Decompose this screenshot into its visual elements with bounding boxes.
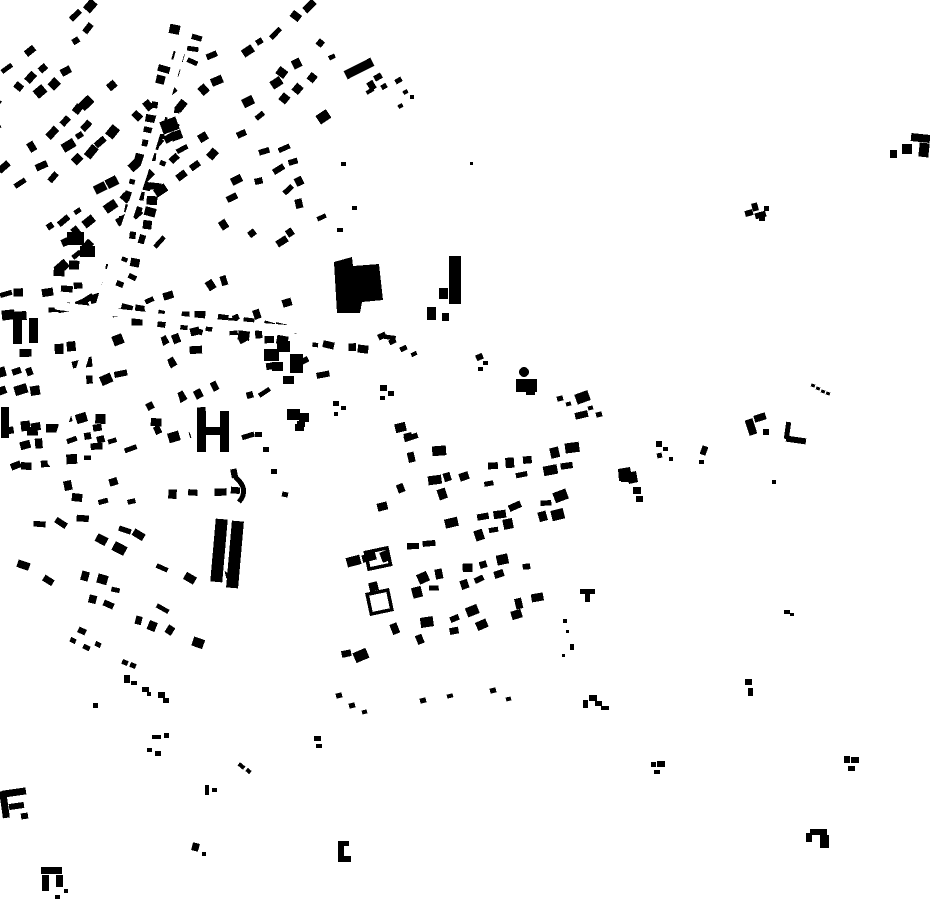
building	[26, 141, 37, 153]
building	[186, 57, 198, 66]
building	[189, 160, 201, 171]
building-footprint-map	[0, 0, 930, 924]
building	[111, 587, 120, 593]
building	[442, 472, 451, 482]
scattered-building	[152, 735, 161, 739]
scattered-building	[212, 788, 217, 792]
building	[47, 77, 61, 91]
scattered-building	[601, 706, 609, 710]
building	[171, 333, 181, 344]
building	[231, 487, 241, 494]
sw-pi-building	[41, 867, 68, 893]
building	[278, 92, 290, 104]
building	[255, 37, 264, 45]
building	[0, 385, 7, 396]
sw-f-building-part	[3, 787, 27, 797]
east-dark-blob	[618, 467, 643, 502]
building	[0, 160, 11, 173]
scattered-building	[394, 77, 403, 85]
building	[41, 288, 53, 298]
building	[151, 418, 162, 427]
sw-pi-building-part	[56, 875, 63, 887]
building	[167, 431, 181, 444]
building	[93, 181, 108, 195]
building	[444, 517, 459, 529]
scattered-building	[588, 405, 594, 410]
building	[252, 309, 262, 320]
scattered-building	[570, 644, 574, 650]
scattered-building	[334, 412, 338, 416]
scattered-building	[263, 447, 269, 452]
building-cluster-nw-fabric	[0, 0, 201, 305]
sw-f-building	[0, 787, 28, 819]
scattered-building	[566, 630, 569, 633]
south-bracket	[338, 841, 351, 862]
building	[315, 38, 325, 48]
scattered-building	[255, 432, 262, 437]
building	[255, 330, 263, 338]
sw-f-building-part	[9, 802, 25, 810]
building	[96, 435, 105, 444]
building	[316, 213, 326, 221]
road-network	[52, 10, 434, 600]
building	[322, 340, 335, 349]
building	[281, 298, 292, 308]
scattered-building	[163, 698, 169, 703]
building	[128, 273, 138, 281]
scattered-building	[669, 457, 673, 461]
building	[436, 488, 448, 501]
scattered-building	[402, 89, 408, 95]
building	[463, 563, 473, 572]
scattered-building	[556, 395, 563, 401]
building	[543, 464, 559, 476]
ne-t-cluster	[744, 202, 769, 221]
east-dark-blob-part	[633, 487, 641, 494]
west-tall-bars	[1, 318, 38, 438]
building	[269, 27, 282, 40]
building	[294, 198, 303, 209]
building	[420, 616, 434, 628]
building	[0, 366, 7, 379]
building	[189, 346, 202, 354]
building	[290, 10, 303, 22]
ne-f-building-part	[890, 150, 897, 158]
scattered-building	[563, 619, 567, 623]
building	[422, 540, 435, 547]
building-cluster-southwest-grid	[16, 517, 234, 649]
building	[94, 136, 107, 149]
building	[169, 153, 180, 164]
building	[60, 65, 73, 76]
building	[346, 555, 362, 568]
building	[105, 124, 120, 139]
scattered-building	[844, 756, 850, 763]
building	[105, 175, 120, 189]
scattered-building	[790, 613, 794, 616]
building	[537, 511, 548, 523]
building	[458, 471, 470, 481]
scattered-building	[158, 692, 165, 698]
building	[111, 541, 127, 556]
scattered-building	[131, 681, 137, 685]
scattered-building	[245, 768, 251, 774]
building	[434, 568, 443, 579]
east-c-building-part	[763, 429, 769, 435]
building	[197, 131, 209, 143]
east-chunk-row-part	[299, 413, 309, 422]
building	[352, 648, 369, 663]
scattered-building	[506, 696, 512, 701]
scattered-building	[202, 852, 206, 856]
building	[118, 526, 132, 535]
building	[488, 462, 498, 469]
building	[357, 344, 369, 353]
building	[108, 477, 118, 487]
building	[74, 282, 83, 289]
scattered-building	[745, 679, 752, 685]
building	[407, 543, 419, 549]
scattered-building	[585, 593, 590, 602]
building	[552, 488, 569, 503]
building	[275, 235, 289, 247]
dotted-row-part	[826, 391, 831, 395]
ne-f-building-part	[902, 144, 912, 154]
building	[489, 527, 499, 533]
building	[475, 618, 489, 631]
building	[127, 498, 136, 505]
building	[272, 163, 285, 174]
building	[82, 22, 94, 34]
building	[205, 279, 217, 292]
building	[574, 390, 591, 405]
scattered-building	[848, 766, 855, 771]
scattered-building	[748, 688, 753, 696]
south-bracket-part	[338, 856, 351, 862]
scattered-building	[394, 422, 407, 433]
building	[0, 123, 1, 132]
building	[24, 71, 37, 84]
building	[411, 586, 423, 599]
building	[188, 489, 198, 496]
scattered-building	[82, 644, 90, 651]
building	[111, 333, 125, 346]
building	[187, 46, 199, 52]
dot-building	[516, 367, 537, 395]
scattered-building	[656, 441, 662, 447]
building	[206, 147, 219, 160]
building	[218, 219, 229, 231]
building	[169, 24, 181, 35]
scattered-building	[69, 637, 77, 644]
building	[477, 512, 490, 520]
building	[449, 627, 459, 635]
scattered-building	[566, 401, 572, 406]
scattered-building	[589, 695, 597, 701]
building	[193, 388, 204, 400]
scattered-building	[470, 162, 473, 165]
scattered-building	[447, 693, 454, 698]
building	[124, 444, 138, 453]
h-building-part	[205, 427, 221, 435]
building	[164, 624, 175, 635]
building	[407, 452, 416, 463]
scattered-building	[121, 659, 128, 666]
scattered-building	[489, 687, 496, 693]
east-chunk-row	[264, 341, 309, 431]
building	[505, 457, 514, 468]
building	[191, 34, 202, 42]
building	[21, 462, 32, 470]
building	[24, 45, 37, 57]
building	[156, 603, 170, 614]
building	[144, 206, 157, 217]
building	[54, 267, 65, 277]
sw-f-building-part	[21, 813, 29, 820]
building	[328, 54, 336, 61]
scattered-building	[238, 762, 246, 770]
building	[174, 107, 180, 114]
scattered-building	[314, 736, 321, 741]
building	[302, 0, 317, 13]
building	[396, 483, 406, 494]
building	[479, 560, 488, 569]
building	[176, 144, 189, 154]
building	[106, 80, 118, 92]
scattered-building	[155, 751, 161, 756]
scattered-building	[352, 206, 357, 210]
se-pi-building-part	[820, 835, 829, 848]
west-tall-bars-part	[13, 319, 22, 344]
scattered-building	[772, 480, 776, 484]
scattered-building	[335, 692, 342, 698]
diagonal-bar	[344, 58, 388, 95]
building	[16, 559, 30, 570]
building	[316, 371, 330, 379]
west-tall-bars-part	[1, 407, 9, 438]
courtyard-frame-2	[367, 590, 392, 614]
east-chunk-row-part	[277, 341, 290, 352]
building	[493, 510, 506, 520]
building	[348, 343, 356, 351]
scattered-building	[700, 445, 709, 456]
ne-t-cluster-part	[744, 209, 753, 217]
building	[255, 111, 266, 121]
tower-block	[427, 256, 461, 321]
scattered-building	[348, 702, 355, 708]
building	[515, 471, 527, 478]
building	[19, 440, 31, 450]
building	[71, 36, 80, 45]
building	[47, 171, 59, 183]
building	[59, 115, 70, 127]
scattered-building	[851, 757, 859, 763]
diagonal-bar-part	[380, 83, 388, 90]
building	[114, 369, 128, 378]
h-building	[197, 411, 229, 452]
building	[315, 109, 331, 124]
building	[508, 501, 522, 512]
building	[465, 604, 480, 618]
building	[428, 475, 443, 486]
building	[46, 222, 55, 231]
ne-t-cluster-part	[764, 206, 769, 211]
building	[510, 609, 523, 620]
building	[180, 325, 188, 330]
scattered-building	[657, 453, 663, 459]
building	[285, 227, 295, 237]
scattered-building	[651, 762, 656, 767]
diagonal-bar-part	[344, 58, 375, 80]
building	[25, 367, 34, 377]
scattered-building	[699, 460, 704, 464]
building	[66, 454, 77, 464]
building	[264, 336, 274, 343]
building	[66, 341, 76, 352]
building	[484, 480, 494, 486]
building	[131, 110, 143, 122]
building	[35, 160, 49, 171]
building	[183, 572, 197, 585]
diagonal-bar-part	[373, 72, 383, 81]
building	[75, 412, 88, 424]
building	[63, 480, 73, 491]
east-chunk-row-part	[283, 376, 294, 384]
se-pi-building	[806, 829, 829, 848]
building	[523, 456, 532, 464]
building	[269, 76, 283, 90]
building	[149, 182, 161, 190]
scattered-building	[205, 785, 209, 795]
scattered-building	[55, 895, 60, 899]
building	[246, 391, 254, 399]
building	[226, 192, 239, 203]
building	[66, 436, 77, 444]
building	[13, 288, 23, 297]
building	[54, 517, 68, 529]
scattered-building	[478, 367, 483, 371]
scattered-building	[483, 361, 488, 365]
building	[368, 581, 379, 592]
building	[0, 63, 13, 74]
scattered-building	[663, 447, 668, 451]
scattered-building	[337, 228, 343, 232]
building	[415, 634, 425, 645]
nw-chunks-part	[80, 246, 95, 257]
building	[496, 553, 509, 565]
building	[376, 501, 388, 511]
building	[341, 649, 352, 657]
building	[93, 424, 103, 432]
tower-block-part	[439, 288, 448, 299]
building	[27, 427, 38, 436]
building	[57, 214, 71, 227]
building	[55, 344, 64, 354]
scattered-building	[297, 421, 305, 427]
building	[115, 280, 124, 288]
scattered-building	[316, 744, 322, 748]
building	[103, 199, 119, 214]
building	[540, 500, 551, 506]
scattered-building	[282, 492, 289, 498]
building	[38, 63, 49, 73]
scattered-building	[271, 469, 277, 474]
scattered-building	[341, 406, 346, 410]
large-central-building	[334, 257, 383, 313]
building	[230, 174, 243, 186]
building	[69, 9, 82, 22]
dot-building-part	[526, 391, 535, 395]
building	[95, 414, 105, 424]
building	[145, 401, 155, 411]
building	[69, 261, 79, 270]
building	[493, 569, 504, 579]
building	[13, 81, 24, 92]
twin-bar-buildings	[210, 519, 244, 589]
scattered-building	[142, 687, 149, 692]
scattered-building	[341, 162, 346, 166]
building	[288, 158, 299, 166]
scattered-building	[129, 662, 136, 669]
building	[241, 44, 255, 57]
building	[416, 571, 430, 585]
sw-pi-building-part	[41, 867, 62, 874]
building	[33, 521, 46, 528]
building	[0, 99, 2, 112]
building	[502, 518, 514, 530]
tower-block-part	[442, 313, 449, 321]
east-dark-blob-part	[636, 496, 643, 502]
twin-bar-buildings-part	[226, 521, 244, 589]
building	[236, 129, 247, 139]
building	[30, 385, 41, 396]
building	[473, 529, 485, 542]
scattered-building	[654, 770, 660, 774]
building	[206, 50, 218, 60]
scattered-building	[93, 703, 98, 708]
building	[197, 83, 210, 96]
east-chunk-row-part	[272, 362, 283, 371]
building	[61, 285, 73, 292]
building	[574, 410, 588, 420]
building	[13, 178, 26, 189]
tower-block-part	[449, 256, 461, 304]
dotted-row	[811, 383, 831, 395]
east-c-building-part	[753, 412, 767, 422]
scattered-building	[94, 641, 102, 648]
ne-t-cluster-part	[759, 217, 765, 221]
building	[61, 138, 77, 153]
scattered-building	[77, 627, 87, 636]
building	[238, 330, 250, 341]
building	[98, 498, 109, 506]
building	[76, 515, 89, 522]
building	[71, 153, 84, 166]
building	[151, 101, 158, 108]
building	[474, 575, 485, 584]
building	[175, 169, 188, 181]
building	[95, 533, 109, 546]
dotted-row-part	[821, 389, 826, 393]
building	[88, 594, 97, 604]
building	[83, 0, 98, 13]
east-chunk-row-part	[287, 409, 300, 420]
building	[258, 147, 270, 156]
building	[157, 64, 170, 74]
building	[35, 438, 43, 449]
building	[103, 600, 115, 610]
scattered-building	[397, 103, 403, 109]
